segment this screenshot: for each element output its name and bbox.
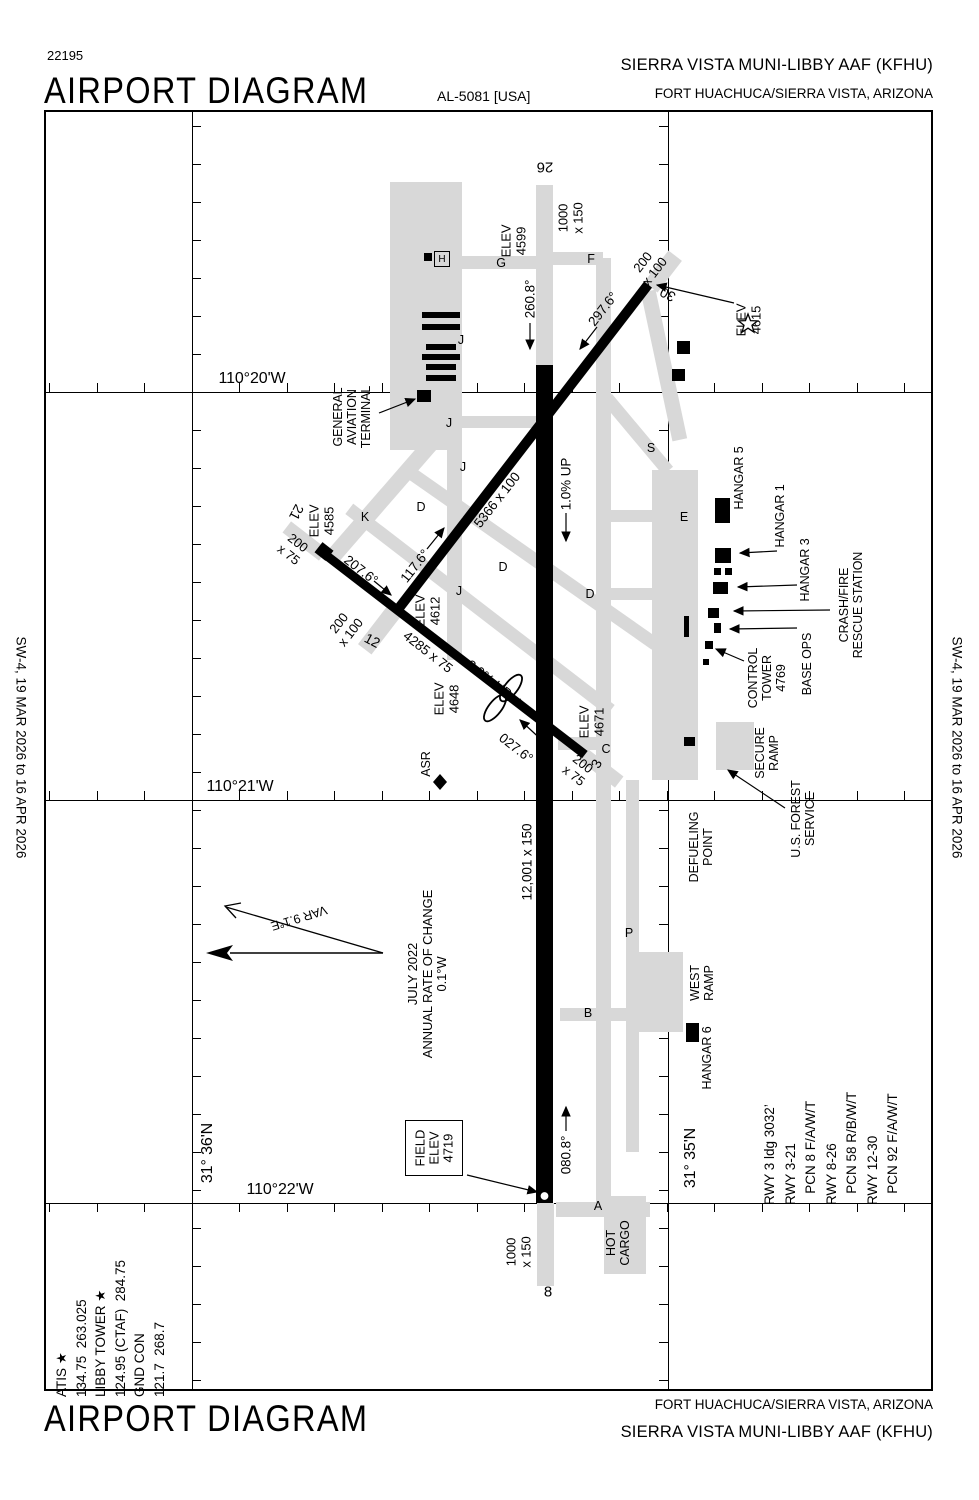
gridline-tick (659, 886, 668, 887)
map-label: HANGAR 5 (732, 446, 746, 509)
gridline-tick (192, 240, 201, 241)
chart-number: 22195 (47, 48, 83, 63)
gridline-tick (49, 791, 50, 800)
map-label: 8 (544, 1285, 552, 1302)
gridline-tick (659, 1342, 668, 1343)
gridline-tick (714, 1203, 715, 1212)
gridline-tick (572, 791, 573, 800)
footer-city: FORT HUACHUCA/SIERRA VISTA, ARIZONA (655, 1397, 933, 1412)
gridline-tick (667, 1203, 668, 1212)
gridline-tick (904, 383, 905, 392)
gridline-tick (192, 582, 201, 583)
gridline-tick (287, 791, 288, 800)
gridline-tick (659, 126, 668, 127)
map-label: GENERAL AVIATION TERMINAL (331, 386, 373, 448)
gridline-tick (477, 791, 478, 800)
gridline-tick (762, 383, 763, 392)
gridline-tick (192, 924, 201, 925)
building (422, 312, 460, 318)
gridline-tick (429, 1203, 430, 1212)
building (703, 659, 709, 665)
map-label: P (625, 926, 633, 940)
gridline-tick (49, 383, 50, 392)
building (705, 641, 713, 649)
gridline-tick (659, 1304, 668, 1305)
map-label: CRASH/FIRE RESCUE STATION (837, 552, 865, 658)
gridline-tick (659, 1380, 668, 1381)
gridline-tick (477, 1203, 478, 1212)
field-elev-label: FIELD ELEV 4719 (413, 1130, 455, 1167)
gridline-tick (714, 791, 715, 800)
map-label: J (460, 460, 466, 474)
gridline-tick (904, 791, 905, 800)
map-label: S (647, 441, 655, 455)
gridline-tick (192, 1228, 201, 1229)
building (424, 253, 432, 261)
gridline-tick (334, 1203, 335, 1212)
map-label: 260.8° (522, 280, 537, 319)
field-elev-box: FIELD ELEV 4719 (405, 1120, 463, 1176)
map-label: DEFUELING POINT (687, 812, 715, 883)
gridline-tick (144, 383, 145, 392)
map-label: B (584, 1006, 592, 1020)
gridline-tick (192, 791, 193, 800)
gridline-tick (619, 383, 620, 392)
map-label: D (586, 587, 595, 601)
gridline-tick (659, 202, 668, 203)
building (426, 375, 456, 381)
gridline-tick (192, 886, 201, 887)
building (715, 498, 730, 523)
gridline-tick (192, 392, 201, 393)
runway-data-block: RWY 3 ldg 3032’ RWY 3-21 PCN 8 F/A/W/T R… (760, 1015, 926, 1205)
gridline-tick (49, 1203, 50, 1212)
header-city: FORT HUACHUCA/SIERRA VISTA, ARIZONA (655, 86, 933, 101)
runway-8-26 (536, 365, 553, 1203)
taxiway-segment (633, 952, 683, 1032)
gridline-tick (667, 791, 668, 800)
gridline-tick (382, 1203, 383, 1212)
gridline-tick (192, 1266, 201, 1267)
helipad-icon: H (434, 251, 450, 267)
gridline-tick (192, 164, 201, 165)
gridline-tick (192, 962, 201, 963)
building (714, 623, 721, 633)
map-label: G (496, 256, 506, 270)
building (684, 737, 695, 746)
gridline-tick (809, 383, 810, 392)
map-label: 26 (537, 158, 554, 175)
taxiway-segment (611, 510, 653, 522)
gridline-tick (857, 383, 858, 392)
gridline-tick (659, 924, 668, 925)
map-label: J (458, 333, 464, 347)
map-label: 1000 x 150 (504, 1236, 533, 1267)
building (677, 341, 690, 354)
gridline-tick (192, 506, 201, 507)
gridline-tick (192, 354, 201, 355)
building (714, 568, 721, 575)
map-label: J (456, 584, 462, 598)
map-label: ELEV 4648 (432, 683, 461, 716)
gridline-tick (659, 430, 668, 431)
edition-right: SW-4, 19 MAR 2026 to 16 APR 2026 (950, 583, 965, 913)
map-label: HANGAR 1 (773, 484, 787, 547)
map-label: WEST RAMP (688, 965, 716, 1001)
building (422, 354, 460, 360)
map-label: CONTROL TOWER 4769 (746, 648, 788, 708)
map-label: ELEV 4612 (413, 595, 442, 628)
gridline-tick (192, 810, 201, 811)
longitude-gridline (45, 392, 932, 393)
map-label: D (499, 560, 508, 574)
building (686, 1023, 699, 1042)
building (422, 324, 460, 330)
map-label: BASE OPS (800, 633, 814, 695)
gridline-tick (524, 1203, 525, 1212)
map-label: 1.0% UP (558, 458, 573, 511)
taxiway-segment (652, 470, 698, 780)
gridline-tick (192, 126, 201, 127)
taxiway-segment (452, 416, 538, 428)
gridline-tick (714, 383, 715, 392)
map-label: HANGAR 3 (798, 538, 812, 601)
map-label: JULY 2022 ANNUAL RATE OF CHANGE 0.1°W (406, 890, 450, 1058)
building (684, 616, 689, 637)
header-airport-name: SIERRA VISTA MUNI-LIBBY AAF (KFHU) (621, 56, 933, 75)
gridline-tick (524, 791, 525, 800)
gridline-tick (192, 1114, 201, 1115)
gridline-tick (192, 696, 201, 697)
gridline-tick (192, 468, 201, 469)
gridline-tick (287, 1203, 288, 1212)
gridline-tick (192, 1342, 201, 1343)
map-label: HANGAR 6 (700, 1026, 714, 1089)
gridline-tick (659, 1228, 668, 1229)
gridline-tick (659, 240, 668, 241)
gridline-tick (429, 791, 430, 800)
gridline-tick (192, 1304, 201, 1305)
taxiway-segment (560, 1008, 630, 1021)
gridline-tick (659, 1076, 668, 1077)
helipad-letter: H (438, 254, 445, 265)
gridline-tick (192, 1076, 201, 1077)
gridline-tick (619, 791, 620, 800)
map-label: J (446, 416, 452, 430)
gridline-tick (659, 164, 668, 165)
map-label: ELEV 4615 (734, 304, 763, 337)
map-label: A (594, 1199, 602, 1213)
airport-diagram-page: 22195 AIRPORT DIAGRAM AL-5081 [USA] SIER… (0, 0, 979, 1500)
map-label: 31° 35'N (682, 1128, 700, 1188)
map-label: C (602, 742, 611, 756)
map-label: E (680, 510, 688, 524)
gridline-tick (192, 430, 201, 431)
gridline-tick (659, 1038, 668, 1039)
gridline-tick (287, 383, 288, 392)
gridline-tick (192, 1190, 201, 1191)
gridline-tick (192, 734, 201, 735)
procedure-id: AL-5081 [USA] (437, 88, 530, 104)
gridline-tick (239, 1203, 240, 1212)
latitude-gridline (192, 111, 193, 1390)
gridline-tick (192, 772, 201, 773)
gridline-tick (659, 1114, 668, 1115)
map-label: ASR (419, 751, 433, 776)
edition-left: SW-4, 19 MAR 2026 to 16 APR 2026 (14, 583, 29, 913)
gridline-tick (762, 791, 763, 800)
taxiway-segment (611, 588, 653, 600)
gridline-tick (144, 791, 145, 800)
gridline-tick (192, 1038, 201, 1039)
map-label: K (361, 510, 369, 524)
map-label: HOT CARGO (604, 1220, 632, 1265)
footer-title: AIRPORT DIAGRAM (44, 1398, 368, 1440)
map-label: F (587, 252, 595, 266)
map-label: 31° 36'N (199, 1123, 217, 1183)
gridline-tick (477, 383, 478, 392)
map-label: 080.8° (558, 1136, 573, 1175)
gridline-tick (192, 658, 201, 659)
gridline-tick (192, 620, 201, 621)
gridline-tick (659, 848, 668, 849)
building (715, 548, 731, 563)
gridline-tick (192, 848, 201, 849)
gridline-tick (659, 1266, 668, 1267)
gridline-tick (192, 383, 193, 392)
gridline-tick (382, 383, 383, 392)
map-label: ELEV 4585 (307, 505, 336, 538)
gridline-tick (97, 791, 98, 800)
map-label: U.S. FOREST SERVICE (789, 780, 817, 857)
taxiway-segment (536, 185, 553, 367)
map-label: 12,001 x 150 (519, 824, 534, 901)
gridline-tick (524, 383, 525, 392)
gridline-tick (192, 202, 201, 203)
building (725, 568, 732, 575)
gridline-tick (192, 544, 201, 545)
map-label: 1000 x 150 (556, 202, 585, 233)
gridline-tick (334, 791, 335, 800)
taxiway-segment (537, 1203, 554, 1286)
building (708, 608, 719, 618)
gridline-tick (192, 1000, 201, 1001)
footer-airport-name: SIERRA VISTA MUNI-LIBBY AAF (KFHU) (621, 1423, 933, 1442)
taxiway-segment (716, 722, 754, 770)
map-label: ELEV 4599 (499, 225, 528, 258)
map-label: D (417, 500, 426, 514)
gridline-tick (659, 810, 668, 811)
building (672, 369, 685, 381)
building (417, 390, 431, 402)
map-label: 110°20'W (218, 370, 285, 388)
page-title: AIRPORT DIAGRAM (44, 70, 368, 112)
gridline-tick (659, 1190, 668, 1191)
building (426, 364, 456, 370)
frequencies-block: ATIS ★ 134.75 263.025 LIBBY TOWER ★ 124.… (52, 1197, 192, 1397)
building (713, 582, 728, 594)
map-label: 110°21'W (206, 778, 273, 796)
gridline-tick (659, 1152, 668, 1153)
map-label: SECURE RAMP (753, 727, 781, 779)
gridline-tick (192, 316, 201, 317)
gridline-tick (192, 1380, 201, 1381)
building (426, 344, 456, 350)
gridline-tick (192, 278, 201, 279)
map-label: ELEV 4671 (577, 706, 606, 739)
gridline-tick (857, 791, 858, 800)
gridline-tick (382, 791, 383, 800)
gridline-tick (97, 383, 98, 392)
map-label: 110°22'W (246, 1181, 313, 1199)
